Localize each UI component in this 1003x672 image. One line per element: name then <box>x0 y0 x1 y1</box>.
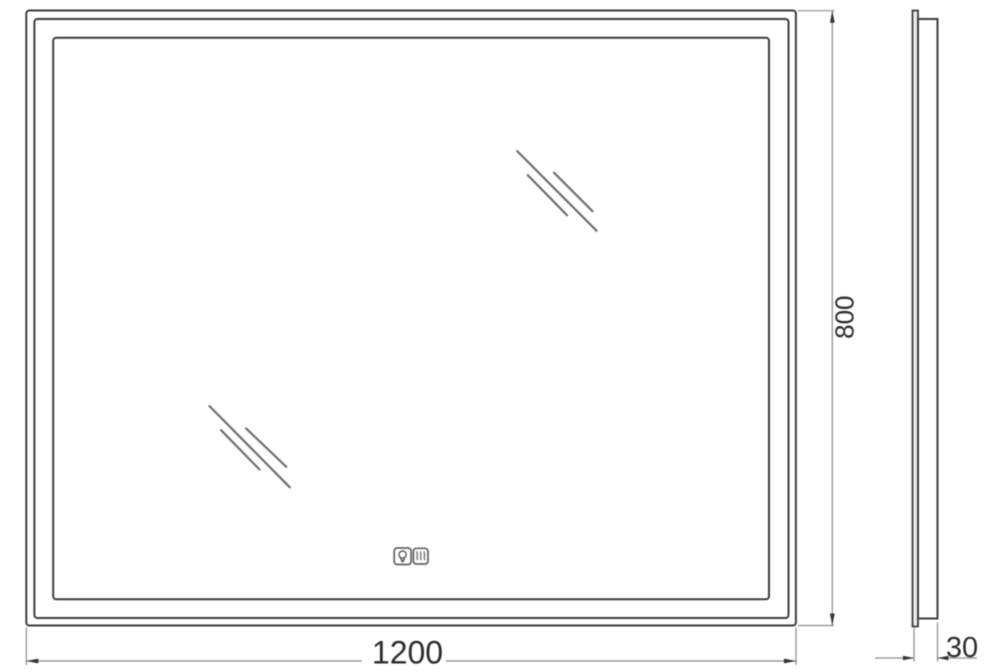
svg-text:800: 800 <box>830 296 860 339</box>
svg-text:1200: 1200 <box>372 635 443 671</box>
svg-text:30: 30 <box>946 632 978 664</box>
